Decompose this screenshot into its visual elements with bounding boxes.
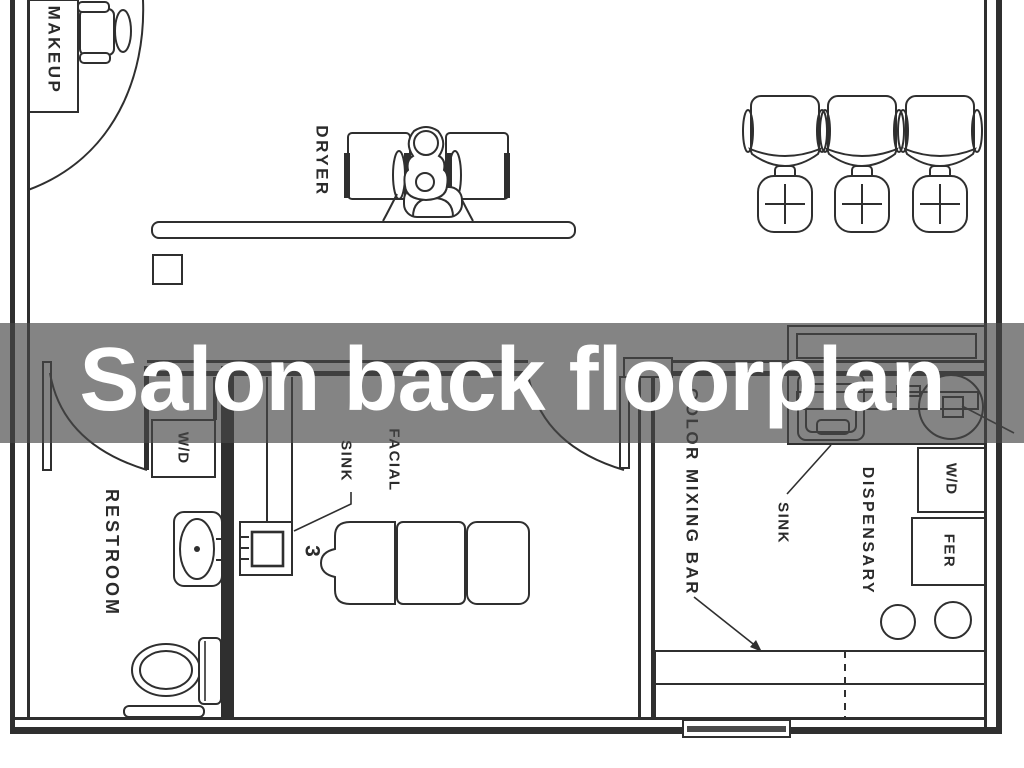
restroom-sink [174,512,228,586]
color-mixing-counter [655,651,985,719]
makeup-chair [78,2,131,63]
facial-room-fixtures [240,492,529,604]
styling-chair-3 [898,96,982,232]
label-restroom: RESTROOM [103,489,121,617]
work-counter [152,222,575,238]
dryer-station [152,127,575,284]
facial-bed [321,522,529,604]
styling-chair-2 [820,96,904,232]
stool-1 [881,605,915,639]
styling-chair-1 [743,96,827,232]
styling-chair-occupied [383,127,473,221]
facial-sink-unit [240,522,292,575]
stool-2 [935,602,971,638]
label-washer-dryer-right: W/D [944,463,959,495]
label-shampoo-sink: SINK [776,502,791,544]
grab-bar [124,706,204,717]
restroom-fixtures [124,512,228,717]
shampoo-sink-leader [787,445,831,494]
rear-entry-door [687,726,786,732]
styling-chairs [743,96,982,232]
label-facial-sink: SINK [339,440,354,482]
dryer-chair-left [348,133,410,199]
toilet [132,638,221,704]
slide-canvas: MAKEUP DRYER RESTROOM W/D FACIAL SINK 3 … [0,0,1024,768]
label-dryer: DRYER [314,125,331,196]
slide-title: Salon back floorplan [79,335,944,431]
label-fridge: FER [942,534,957,569]
label-dispensary: DISPENSARY [859,467,875,595]
label-makeup: MAKEUP [46,6,63,95]
color-bar-leader [694,597,757,647]
dispensary-area [655,406,1014,719]
title-banner: Salon back floorplan [0,323,1024,443]
stool-square [153,255,182,284]
label-faucet-number: 3 [302,545,323,557]
